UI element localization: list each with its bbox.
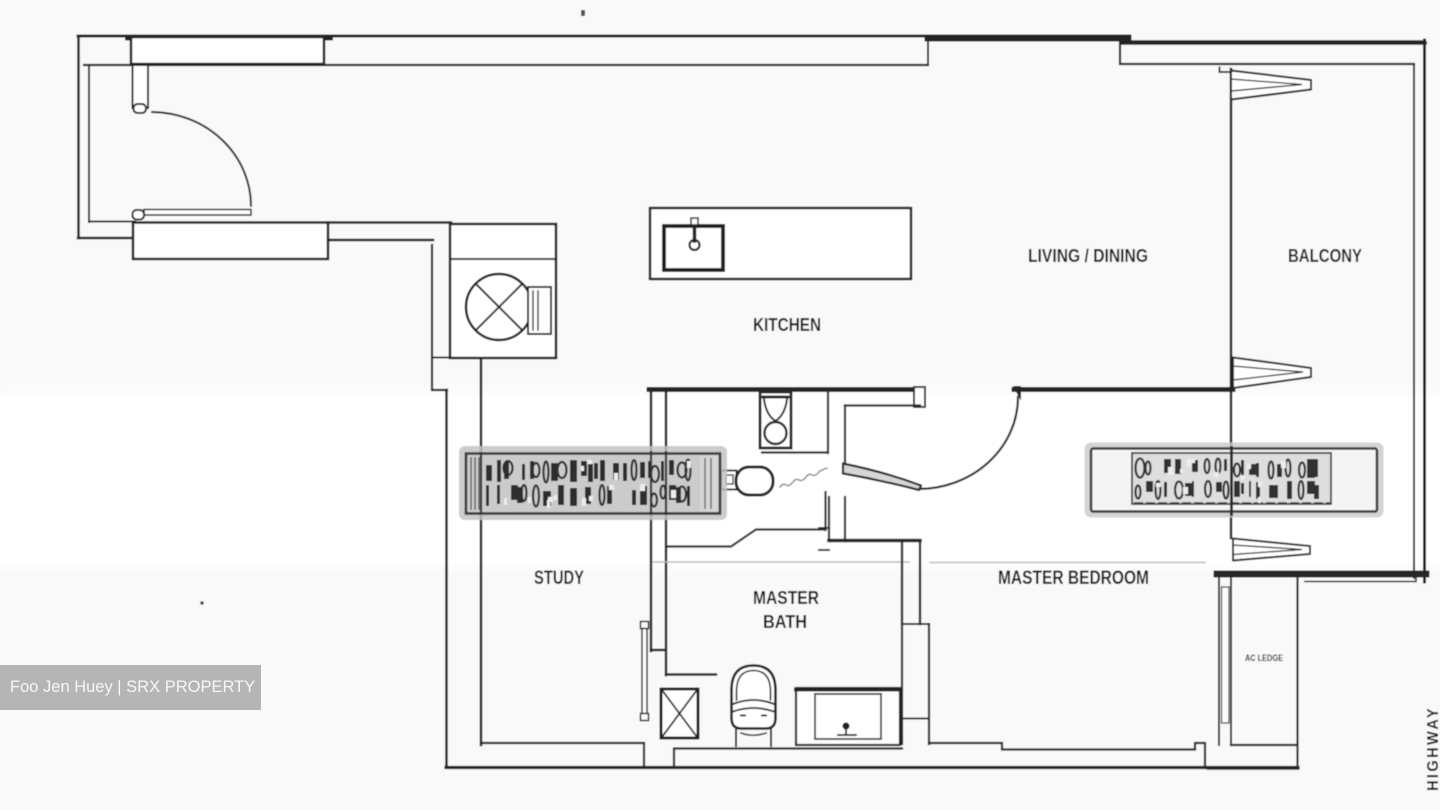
svg-text:STUDY: STUDY [534, 568, 584, 589]
svg-text:AC LEDGE: AC LEDGE [1245, 653, 1283, 664]
svg-text:BATH: BATH [763, 612, 807, 632]
svg-text:MASTER: MASTER [753, 588, 819, 608]
svg-text:LIVING / DINING: LIVING / DINING [1028, 246, 1148, 266]
svg-text:MASTER BEDROOM: MASTER BEDROOM [998, 568, 1149, 589]
svg-text:BALCONY: BALCONY [1288, 246, 1362, 266]
svg-text:HIGHWAY: HIGHWAY [1425, 706, 1440, 791]
svg-text:KITCHEN: KITCHEN [753, 315, 821, 335]
